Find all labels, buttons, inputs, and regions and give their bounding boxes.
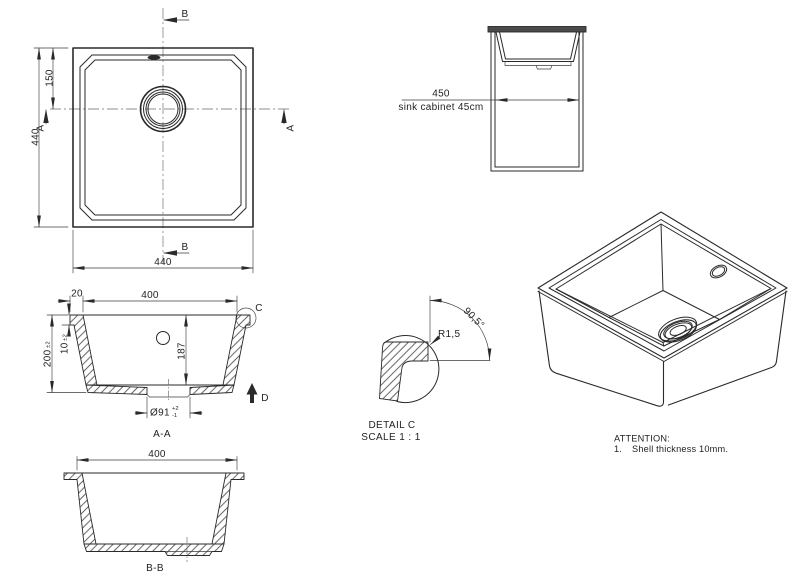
aa-dimensions: 20 400 200±2 10±2 187 Ø91 +2 -1 [43,289,238,420]
detail-c-radius: R1,5 [438,329,460,340]
bb-dimensions: 400 [77,449,237,470]
plan-dim-drain-offset: 150 [45,69,56,87]
aa-dim-height-tol: ±2 [46,341,52,348]
iso-basin-interior [556,224,771,346]
detail-c-view: 90,5° R1,5 DETAIL C SCALE 1 : 1 [361,296,490,443]
iso-body-right [669,291,787,405]
cabinet-caption: sink cabinet 45cm [398,102,483,113]
countertop [488,27,586,33]
aa-dim-drain: Ø91 [150,408,170,419]
cabinet-dim-width: 450 [432,89,450,100]
aa-dim-rim: 20 [71,289,83,300]
bb-dim-opening: 400 [148,449,166,460]
detail-c-scale: SCALE 1 : 1 [361,432,420,443]
attention-item-number: 1. [614,444,622,454]
detail-c-section [380,342,429,401]
bb-wall-left [64,473,96,544]
detail-c-angle: 90,5° [461,306,486,331]
sink-technical-drawing: B B A A 440 150 440 [0,0,800,579]
cabinet-drain-stub [536,66,552,70]
aa-dim-drain-tol-minus: -1 [172,413,177,419]
section-b-label-bottom: B [181,242,188,253]
iso-body-left [539,291,664,406]
section-a-label-right: A [286,124,297,131]
section-aa-view: C 20 400 200±2 10±2 187 Ø91 +2 [43,289,269,441]
aa-dim-depth: 187 [177,342,188,360]
section-bb-view: 400 B-B [64,449,244,574]
bb-bottom [84,544,224,556]
overflow-hole-top [148,55,161,59]
aa-dim-lip-tol: ±2 [63,334,69,341]
aa-dim-lip-value: 10 [60,342,71,354]
plan-dimensions: 440 150 440 [31,48,254,273]
view-d-arrow [247,383,258,403]
isometric-view [538,212,787,406]
plan-dim-height: 440 [31,128,42,146]
section-aa-title: A-A [153,429,171,440]
plan-view: B B A A 440 150 440 [31,8,297,273]
iso-overflow-hole [708,262,729,280]
cabinet-sink-outer [496,32,580,62]
aa-wall-left [70,315,97,385]
view-d-label: D [261,393,269,404]
aa-bottom-right [190,385,234,395]
cabinet-sink-lip [505,62,571,66]
attention-heading: ATTENTION: [614,434,670,444]
cabinet-body [491,32,583,171]
section-b-label-top: B [181,9,188,20]
aa-dim-lip: 10±2 [60,334,71,354]
aa-overflow-hole [157,332,170,345]
attention-item-text: Shell thickness 10mm. [632,444,728,454]
aa-dim-height-value: 200 [43,349,54,367]
aa-dim-drain-tol-plus: +2 [172,406,179,412]
attention-notes: ATTENTION: 1. Shell thickness 10mm. [614,434,728,455]
detail-c-marker-label: C [255,303,263,314]
cabinet-sink-inner [500,32,577,59]
technical-drawing-page: B B A A 440 150 440 [0,0,800,579]
iso-basin-opening [556,224,771,343]
cabinet-dimension: 450 sink cabinet 45cm [398,89,579,114]
detail-c-title: DETAIL C [368,420,415,431]
cabinet-view: 450 sink cabinet 45cm [398,27,586,172]
aa-dim-opening: 400 [141,290,159,301]
aa-bottom-left [86,385,147,395]
aa-wall-right [223,315,250,385]
bb-wall-right [212,473,244,544]
section-bb-title: B-B [146,563,164,574]
plan-dim-width: 440 [154,257,172,268]
